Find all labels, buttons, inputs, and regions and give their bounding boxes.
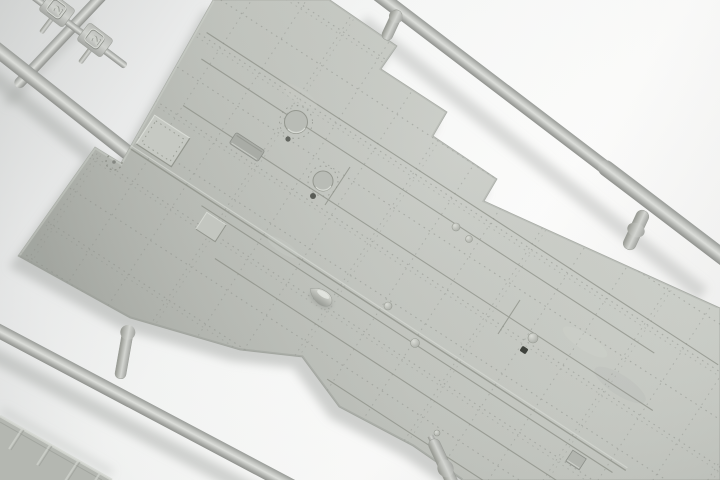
sprue-photo-canvas: 2 2 2 2 xyxy=(0,0,720,480)
small-hole xyxy=(285,136,290,141)
small-hole xyxy=(310,193,316,199)
photo-plastic-model-sprue: 2 2 2 2 xyxy=(0,0,720,480)
